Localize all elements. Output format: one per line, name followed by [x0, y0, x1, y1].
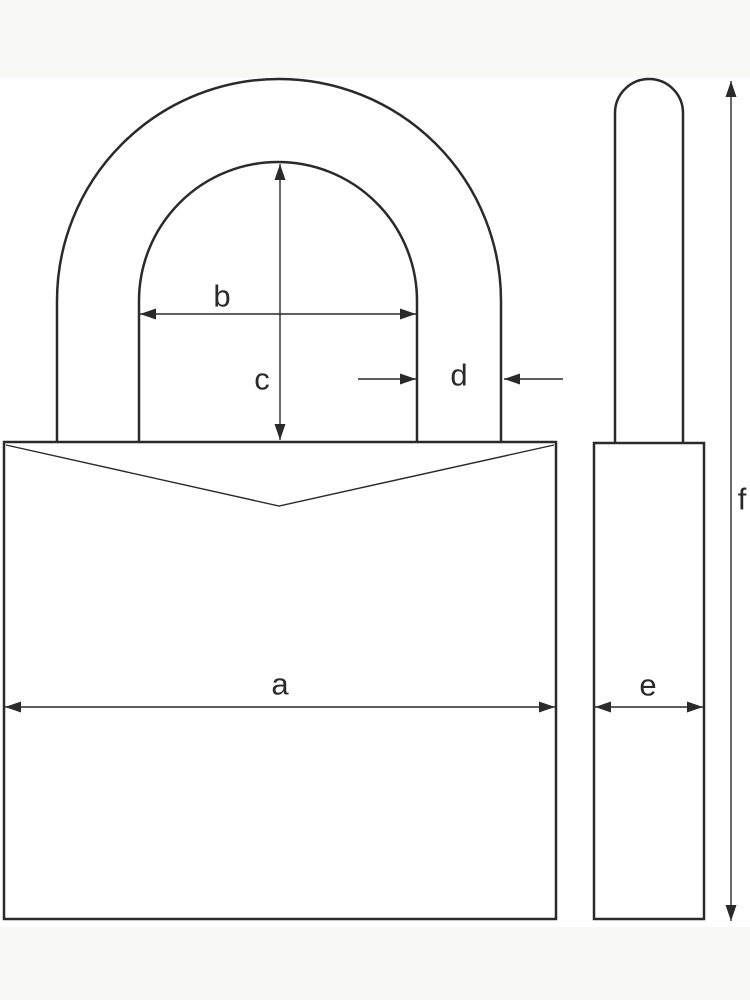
arrowhead-icon [539, 702, 555, 713]
dimension-lines: abcdef [5, 81, 747, 921]
dimension-label-b: b [213, 279, 230, 314]
arrowhead-icon [726, 81, 737, 97]
diagram-canvas: abcdef [0, 0, 750, 1000]
arrowhead-icon [595, 702, 611, 713]
arrowhead-icon [400, 374, 416, 385]
dimension-label-c: c [254, 362, 270, 397]
dimension-b: b [140, 279, 416, 320]
dimension-a: a [5, 667, 555, 713]
dimension-label-e: e [639, 668, 656, 703]
dimension-label-a: a [271, 667, 289, 702]
dimension-f: f [726, 81, 747, 921]
side-view [594, 79, 704, 919]
arrowhead-icon [275, 424, 286, 440]
arrowhead-icon [140, 309, 156, 320]
dimension-label-d: d [450, 358, 467, 393]
arrowhead-icon [504, 374, 520, 385]
dimension-e: e [595, 668, 703, 713]
arrowhead-icon [275, 164, 286, 180]
arrowhead-icon [400, 309, 416, 320]
arrowhead-icon [726, 905, 737, 921]
body-chamfer-notch [6, 445, 554, 506]
dimension-d: d [358, 358, 563, 393]
side-shackle-rod-outline [615, 79, 683, 443]
background-band-top [0, 0, 750, 78]
padlock-dimension-diagram: abcdef [0, 0, 750, 1000]
arrowhead-icon [687, 702, 703, 713]
shackle-inner-outline [139, 162, 417, 443]
arrowhead-icon [5, 702, 21, 713]
shackle-outer-outline [57, 79, 501, 443]
dimension-label-f: f [738, 482, 747, 517]
dimension-c: c [254, 164, 285, 440]
background-band-bottom [0, 927, 750, 1000]
